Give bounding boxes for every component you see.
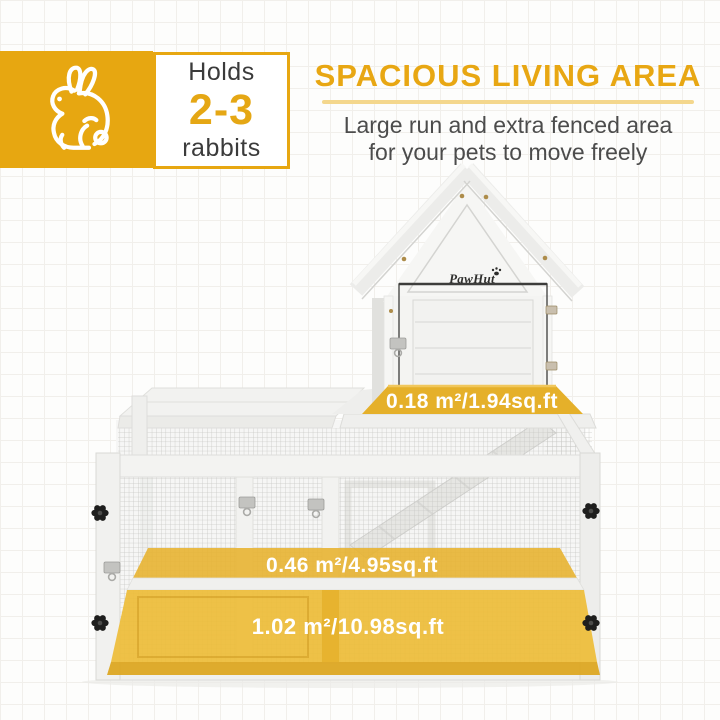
door-panel (413, 300, 533, 390)
house-section: PawHut (354, 165, 580, 410)
raised-floor-edge (127, 578, 584, 590)
hutch-illustration: PawHut 0.18 m²/1.94sq.ft 0.46 m²/4.95sq.… (0, 0, 720, 720)
back-left-corner-post (132, 396, 147, 458)
area-label-ground-run: 1.02 m²/10.98sq.ft (252, 614, 445, 639)
area-overlay-raised-run: 0.46 m²/4.95sq.ft (133, 548, 577, 578)
area-label-raised-run: 0.46 m²/4.95sq.ft (266, 554, 438, 577)
area-overlay-ground-run: 1.02 m²/10.98sq.ft (107, 590, 600, 675)
top-left-mesh (118, 428, 340, 457)
hinge-bottom (546, 362, 557, 370)
brand-text: PawHut (449, 271, 495, 286)
run-lid (118, 388, 364, 428)
area-label-house-platform: 0.18 m²/1.94sq.ft (386, 390, 558, 413)
area-overlay-house-platform: 0.18 m²/1.94sq.ft (362, 386, 583, 414)
product-infographic: Holds 2-3 rabbits SPACIOUS LIVING AREA L… (0, 0, 720, 720)
front-top-rail (96, 455, 588, 477)
hinge-top (546, 306, 557, 314)
brand-logo: PawHut (449, 267, 501, 286)
platform-front-board (340, 414, 596, 428)
house-door (399, 284, 547, 390)
